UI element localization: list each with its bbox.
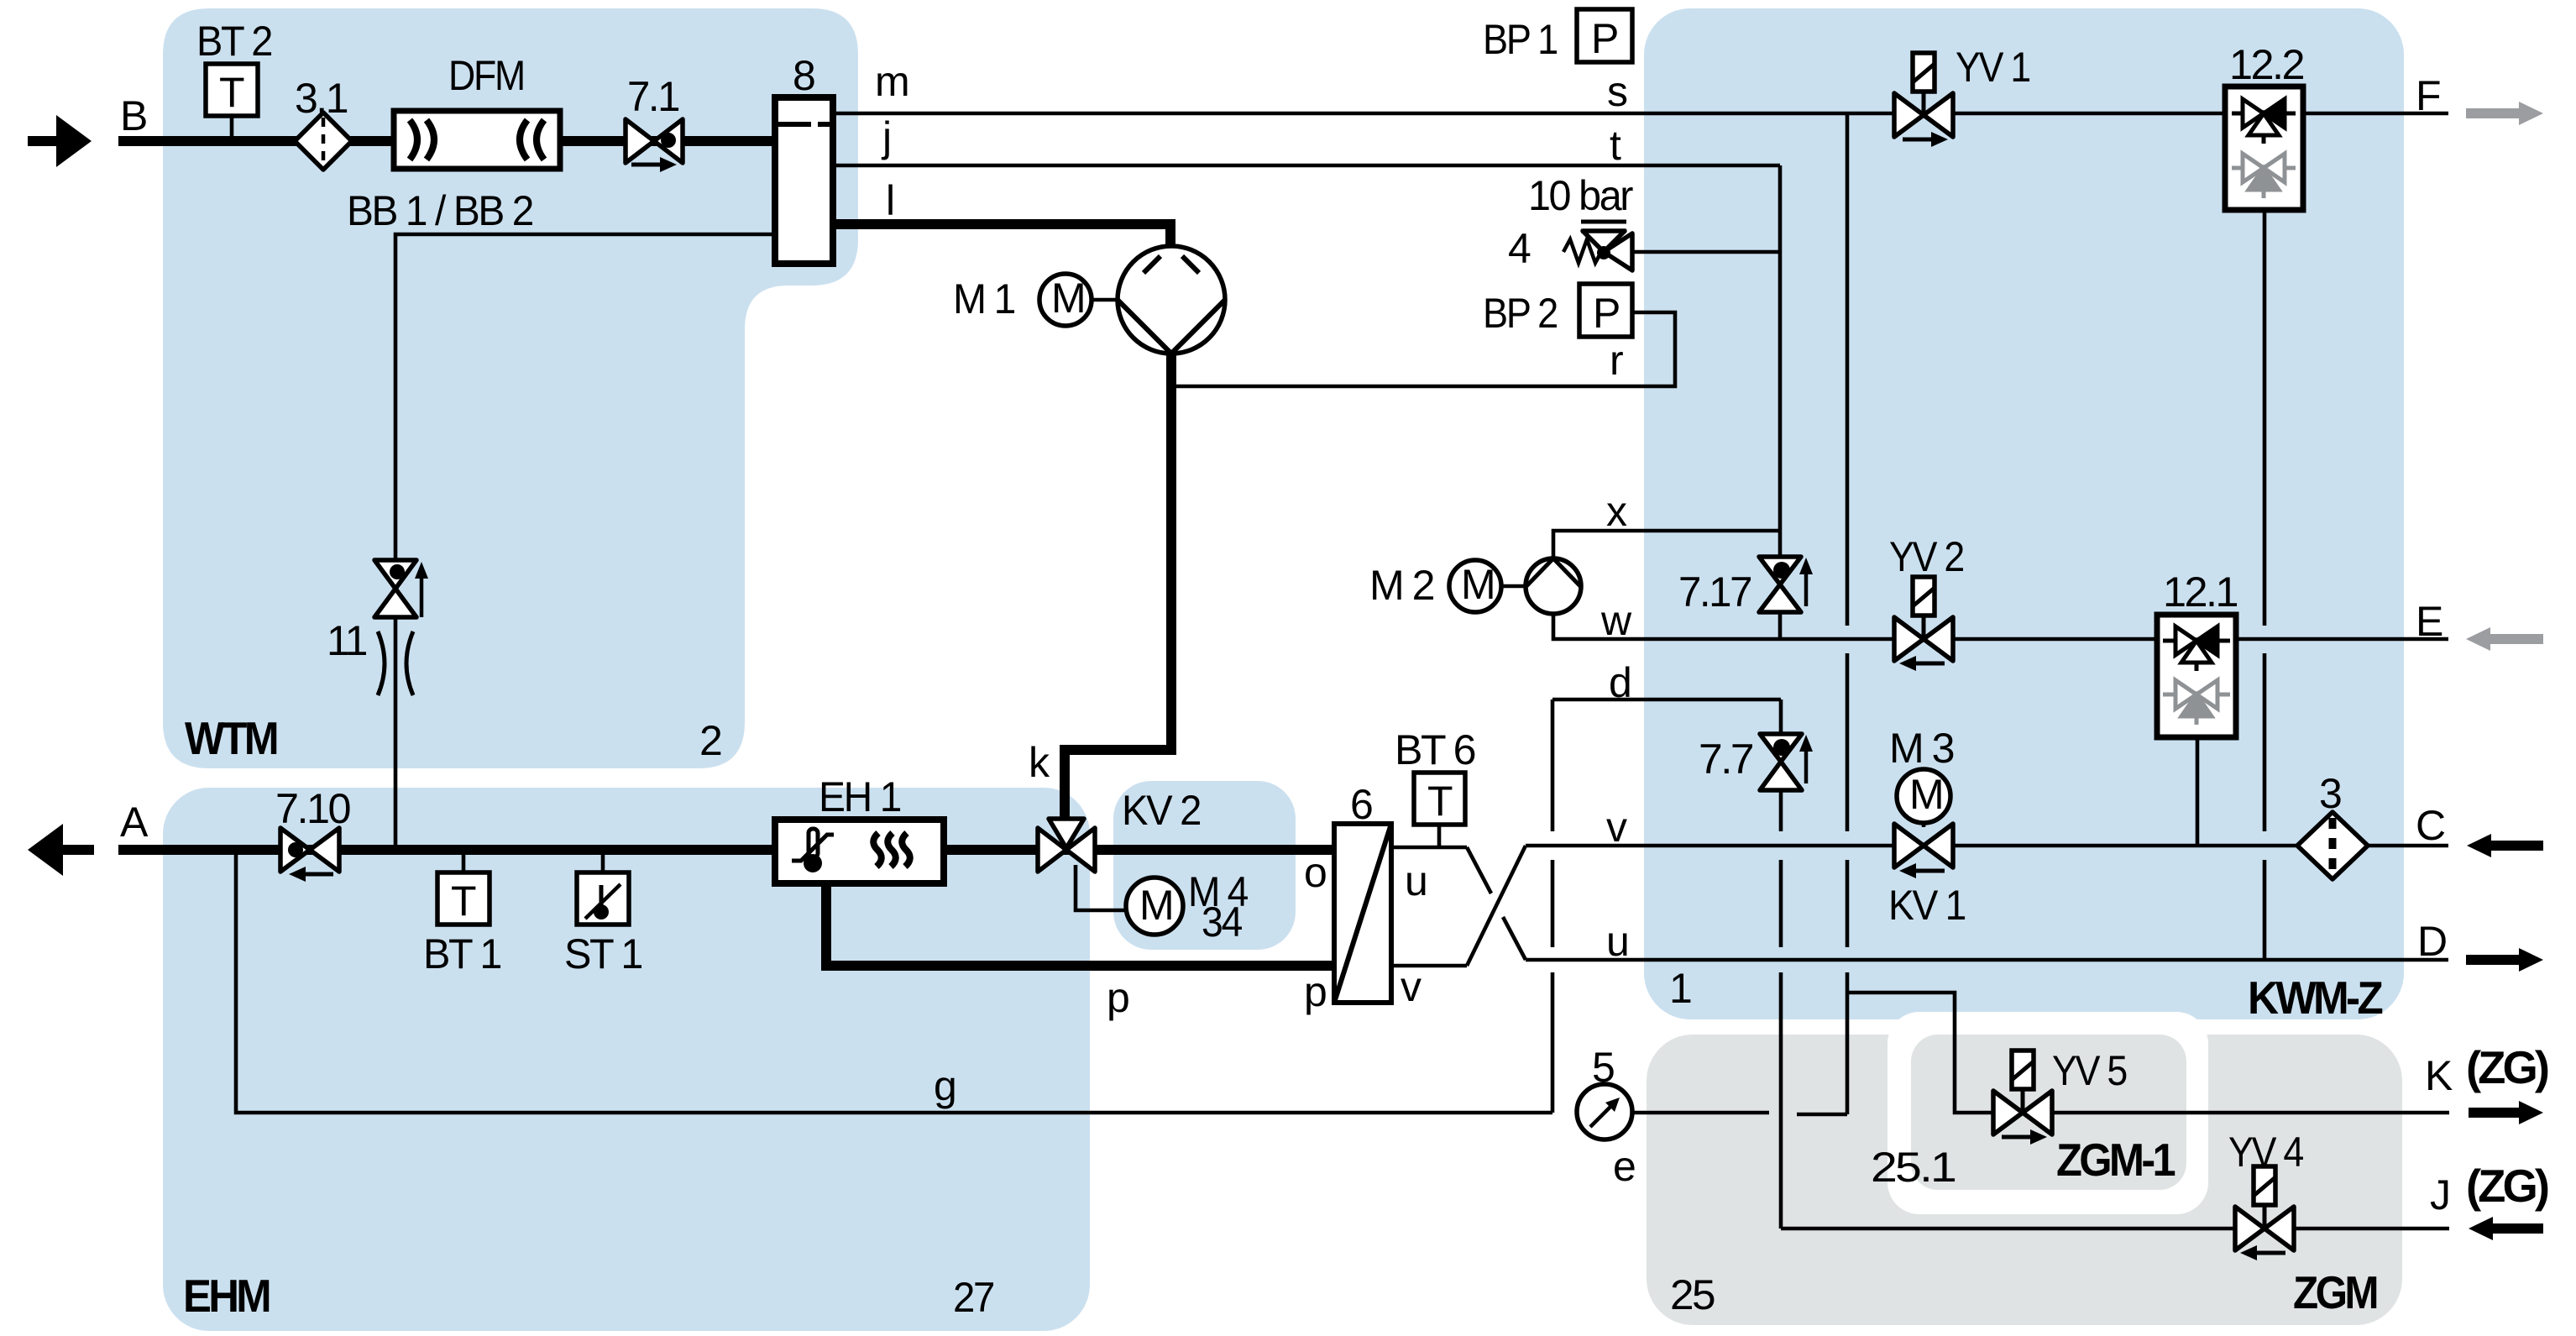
svg-text:v: v	[1606, 804, 1627, 851]
svg-text:BP 2: BP 2	[1483, 290, 1558, 337]
svg-text:ZGM: ZGM	[2293, 1266, 2377, 1318]
svg-text:7.17: 7.17	[1678, 568, 1751, 616]
svg-text:(ZG): (ZG)	[2466, 1041, 2548, 1093]
svg-text:g: g	[934, 1062, 955, 1109]
svg-text:M: M	[1051, 275, 1084, 322]
svg-text:3.1: 3.1	[295, 75, 348, 122]
svg-text:k: k	[1029, 739, 1050, 786]
svg-text:DFM: DFM	[448, 52, 524, 99]
svg-text:3: 3	[2319, 770, 2341, 817]
svg-text:BP 1: BP 1	[1483, 16, 1558, 63]
svg-text:BT 1: BT 1	[423, 930, 501, 977]
svg-text:11: 11	[327, 617, 367, 664]
svg-text:ST 1: ST 1	[564, 930, 642, 977]
svg-text:F: F	[2416, 72, 2440, 119]
svg-text:6: 6	[1350, 781, 1372, 828]
svg-text:u: u	[1405, 857, 1426, 904]
svg-text:BB 1 / BB 2: BB 1 / BB 2	[347, 187, 533, 234]
svg-text:ZGM-1: ZGM-1	[2056, 1134, 2175, 1186]
svg-text:E: E	[2416, 598, 2442, 645]
svg-text:YV 2: YV 2	[1889, 533, 1964, 580]
svg-text:e: e	[1613, 1143, 1635, 1190]
svg-text:M: M	[1139, 882, 1172, 929]
svg-text:M: M	[1909, 771, 1942, 818]
svg-text:m: m	[875, 58, 908, 105]
svg-text:A: A	[120, 799, 149, 846]
svg-text:2: 2	[699, 717, 721, 764]
svg-text:KV 2: KV 2	[1122, 787, 1201, 834]
svg-text:10 bar: 10 bar	[1528, 172, 1633, 219]
svg-text:KWM-Z: KWM-Z	[2248, 972, 2383, 1024]
svg-text:p: p	[1304, 968, 1326, 1015]
svg-text:BT 6: BT 6	[1395, 726, 1475, 773]
svg-text:M: M	[1461, 561, 1494, 608]
svg-text:B: B	[120, 92, 146, 139]
svg-text:4: 4	[1508, 225, 1531, 272]
svg-text:BT 2: BT 2	[196, 18, 272, 65]
svg-text:M 2: M 2	[1369, 562, 1434, 609]
svg-text:j: j	[881, 113, 890, 160]
svg-text:P: P	[1591, 15, 1617, 62]
svg-text:25: 25	[1670, 1271, 1715, 1318]
svg-text:12.2: 12.2	[2229, 41, 2304, 88]
svg-text:YV 1: YV 1	[1956, 44, 2030, 91]
svg-text:v: v	[1401, 963, 1422, 1010]
svg-text:(ZG): (ZG)	[2466, 1160, 2548, 1212]
svg-text:EH 1: EH 1	[819, 773, 901, 820]
svg-text:YV 4: YV 4	[2228, 1129, 2304, 1176]
svg-text:l: l	[886, 177, 893, 224]
svg-text:7.1: 7.1	[627, 73, 679, 120]
svg-text:p: p	[1107, 974, 1128, 1021]
svg-text:s: s	[1607, 68, 1627, 115]
svg-text:KV 1: KV 1	[1888, 882, 1966, 929]
svg-text:12.1: 12.1	[2163, 568, 2238, 616]
svg-text:M 3: M 3	[1889, 725, 1954, 772]
svg-text:r: r	[1610, 337, 1623, 384]
svg-text:EHM: EHM	[183, 1270, 270, 1322]
svg-text:x: x	[1606, 488, 1627, 535]
svg-text:J: J	[2430, 1171, 2449, 1218]
svg-text:T: T	[1427, 778, 1453, 825]
svg-text:P: P	[1593, 290, 1619, 337]
svg-text:1: 1	[1669, 965, 1691, 1012]
svg-text:u: u	[1606, 918, 1627, 965]
svg-text:T: T	[219, 69, 244, 116]
svg-text:C: C	[2416, 802, 2445, 849]
svg-text:8: 8	[793, 52, 814, 99]
svg-text:T: T	[451, 878, 476, 925]
svg-text:7.7: 7.7	[1699, 736, 1753, 783]
svg-text:o: o	[1304, 849, 1326, 896]
svg-text:YV 5: YV 5	[2052, 1047, 2127, 1094]
svg-text:d: d	[1609, 659, 1630, 706]
svg-text:M 1: M 1	[953, 275, 1015, 322]
svg-text:34: 34	[1202, 899, 1243, 946]
svg-text:25.1: 25.1	[1871, 1144, 1956, 1191]
svg-text:5: 5	[1592, 1044, 1614, 1091]
svg-text:D: D	[2417, 918, 2446, 965]
svg-text:27: 27	[953, 1274, 994, 1321]
svg-text:WTM: WTM	[185, 712, 277, 764]
svg-text:K: K	[2425, 1052, 2453, 1099]
svg-text:7.10: 7.10	[275, 785, 350, 832]
svg-text:w: w	[1600, 597, 1632, 644]
